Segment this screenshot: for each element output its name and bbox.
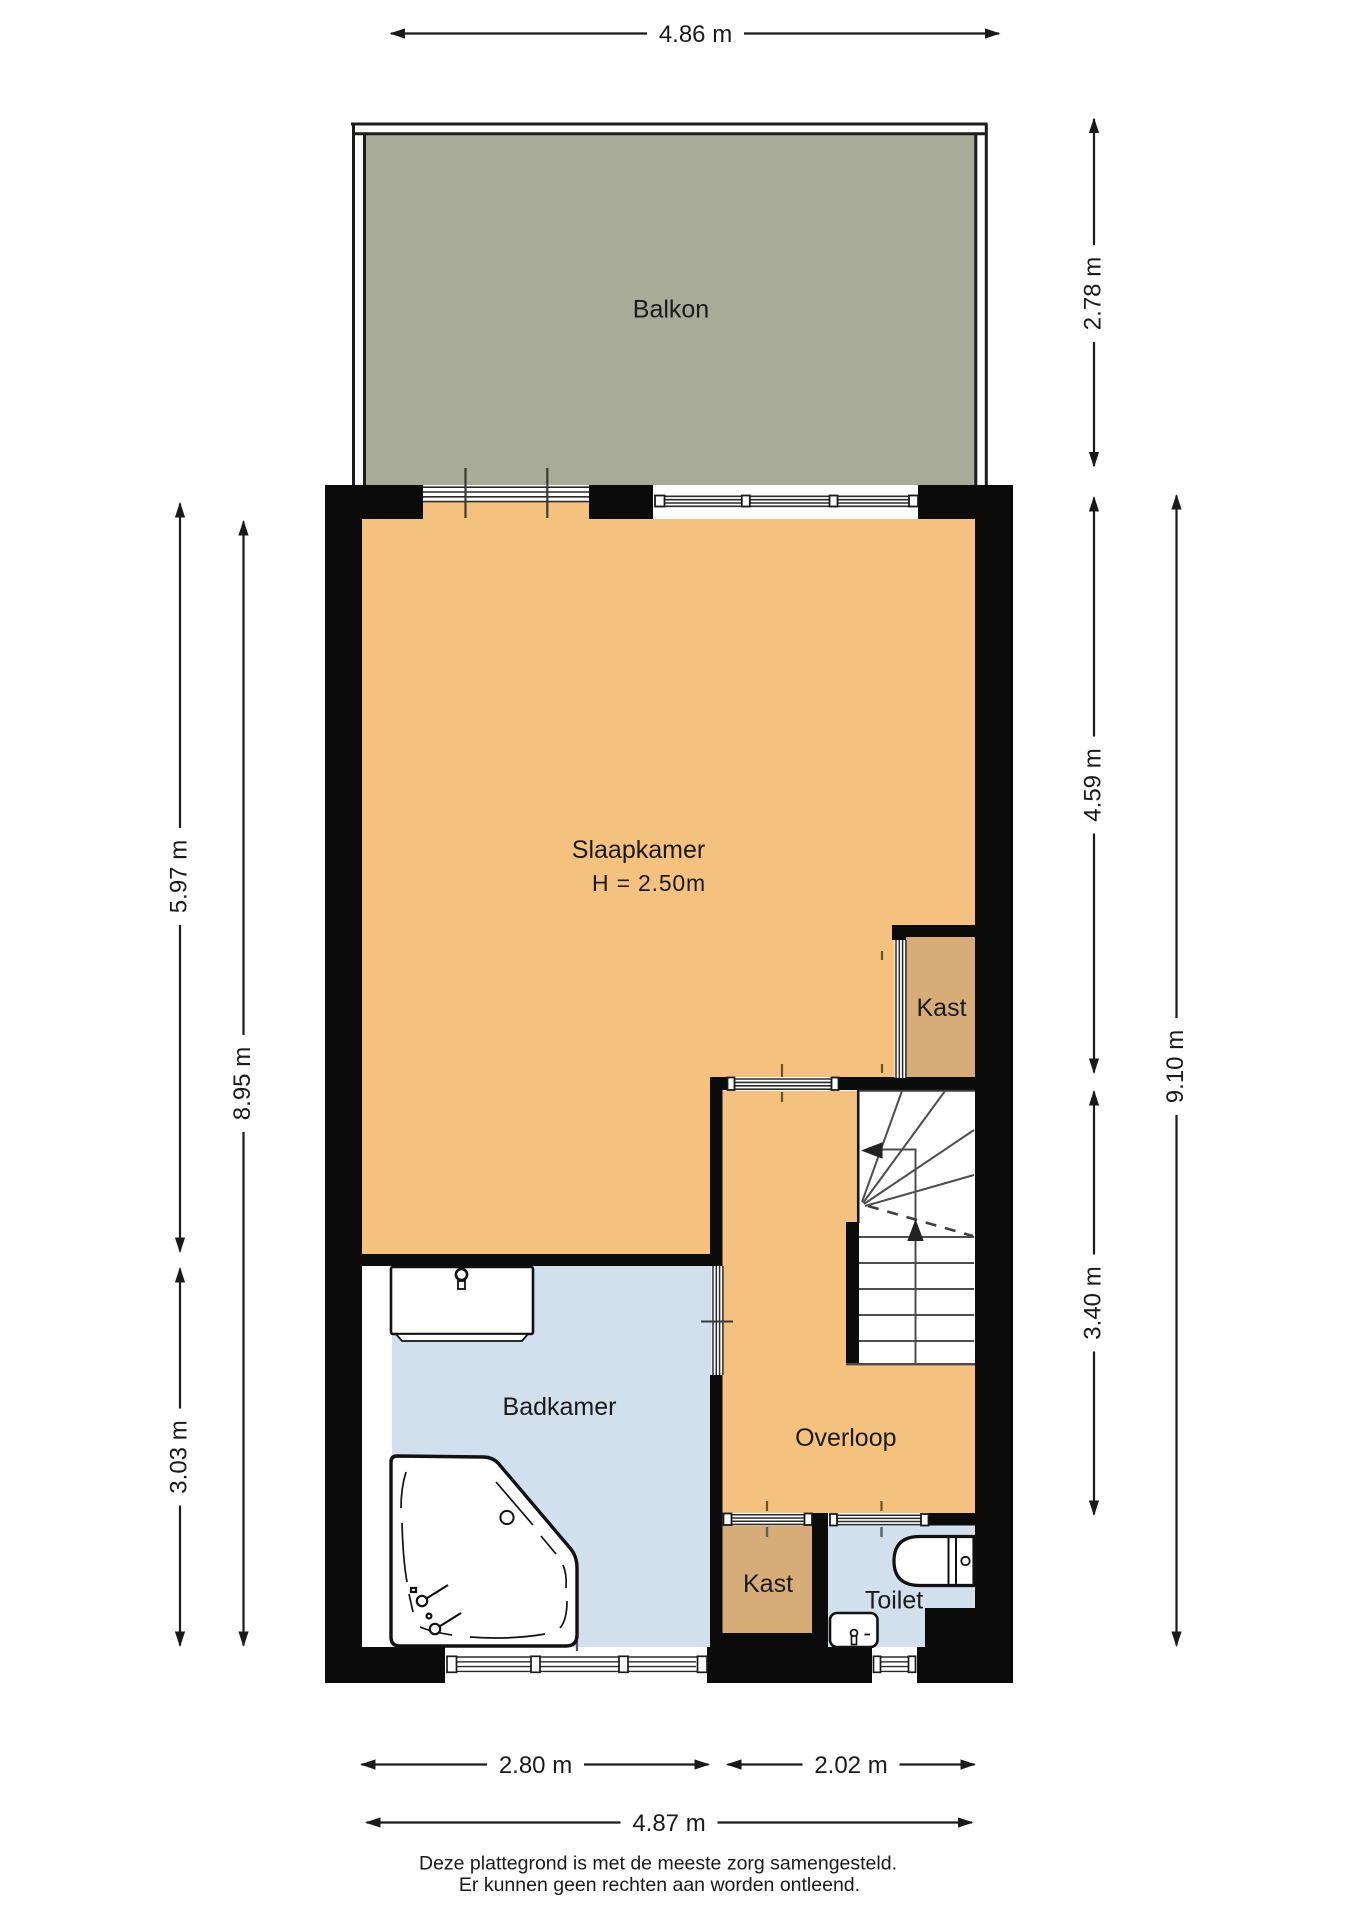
svg-text:Balkon: Balkon bbox=[633, 296, 709, 324]
svg-text:Slaapkamer: Slaapkamer bbox=[572, 836, 705, 864]
svg-text:2.02 m: 2.02 m bbox=[814, 1752, 887, 1779]
svg-text:Kast: Kast bbox=[916, 994, 966, 1022]
svg-text:9.10 m: 9.10 m bbox=[1162, 1030, 1189, 1103]
svg-text:Deze plattegrond is met de mee: Deze plattegrond is met de meeste zorg s… bbox=[419, 1853, 897, 1875]
svg-text:Kast: Kast bbox=[743, 1570, 793, 1598]
svg-text:2.78 m: 2.78 m bbox=[1080, 257, 1107, 330]
svg-text:Toilet: Toilet bbox=[865, 1587, 923, 1615]
svg-text:8.95 m: 8.95 m bbox=[229, 1047, 256, 1120]
svg-text:4.86 m: 4.86 m bbox=[659, 21, 732, 48]
svg-text:Badkamer: Badkamer bbox=[503, 1393, 617, 1421]
svg-text:H = 2.50m: H = 2.50m bbox=[592, 870, 706, 896]
svg-text:3.03 m: 3.03 m bbox=[166, 1420, 193, 1493]
svg-text:2.80 m: 2.80 m bbox=[499, 1752, 572, 1779]
svg-text:Overloop: Overloop bbox=[795, 1424, 896, 1452]
svg-text:4.87 m: 4.87 m bbox=[632, 1810, 705, 1837]
svg-text:3.40 m: 3.40 m bbox=[1080, 1266, 1107, 1339]
svg-text:5.97 m: 5.97 m bbox=[166, 840, 193, 913]
svg-text:4.59 m: 4.59 m bbox=[1080, 748, 1107, 821]
svg-text:Er kunnen geen rechten aan wor: Er kunnen geen rechten aan worden ontlee… bbox=[459, 1874, 860, 1896]
